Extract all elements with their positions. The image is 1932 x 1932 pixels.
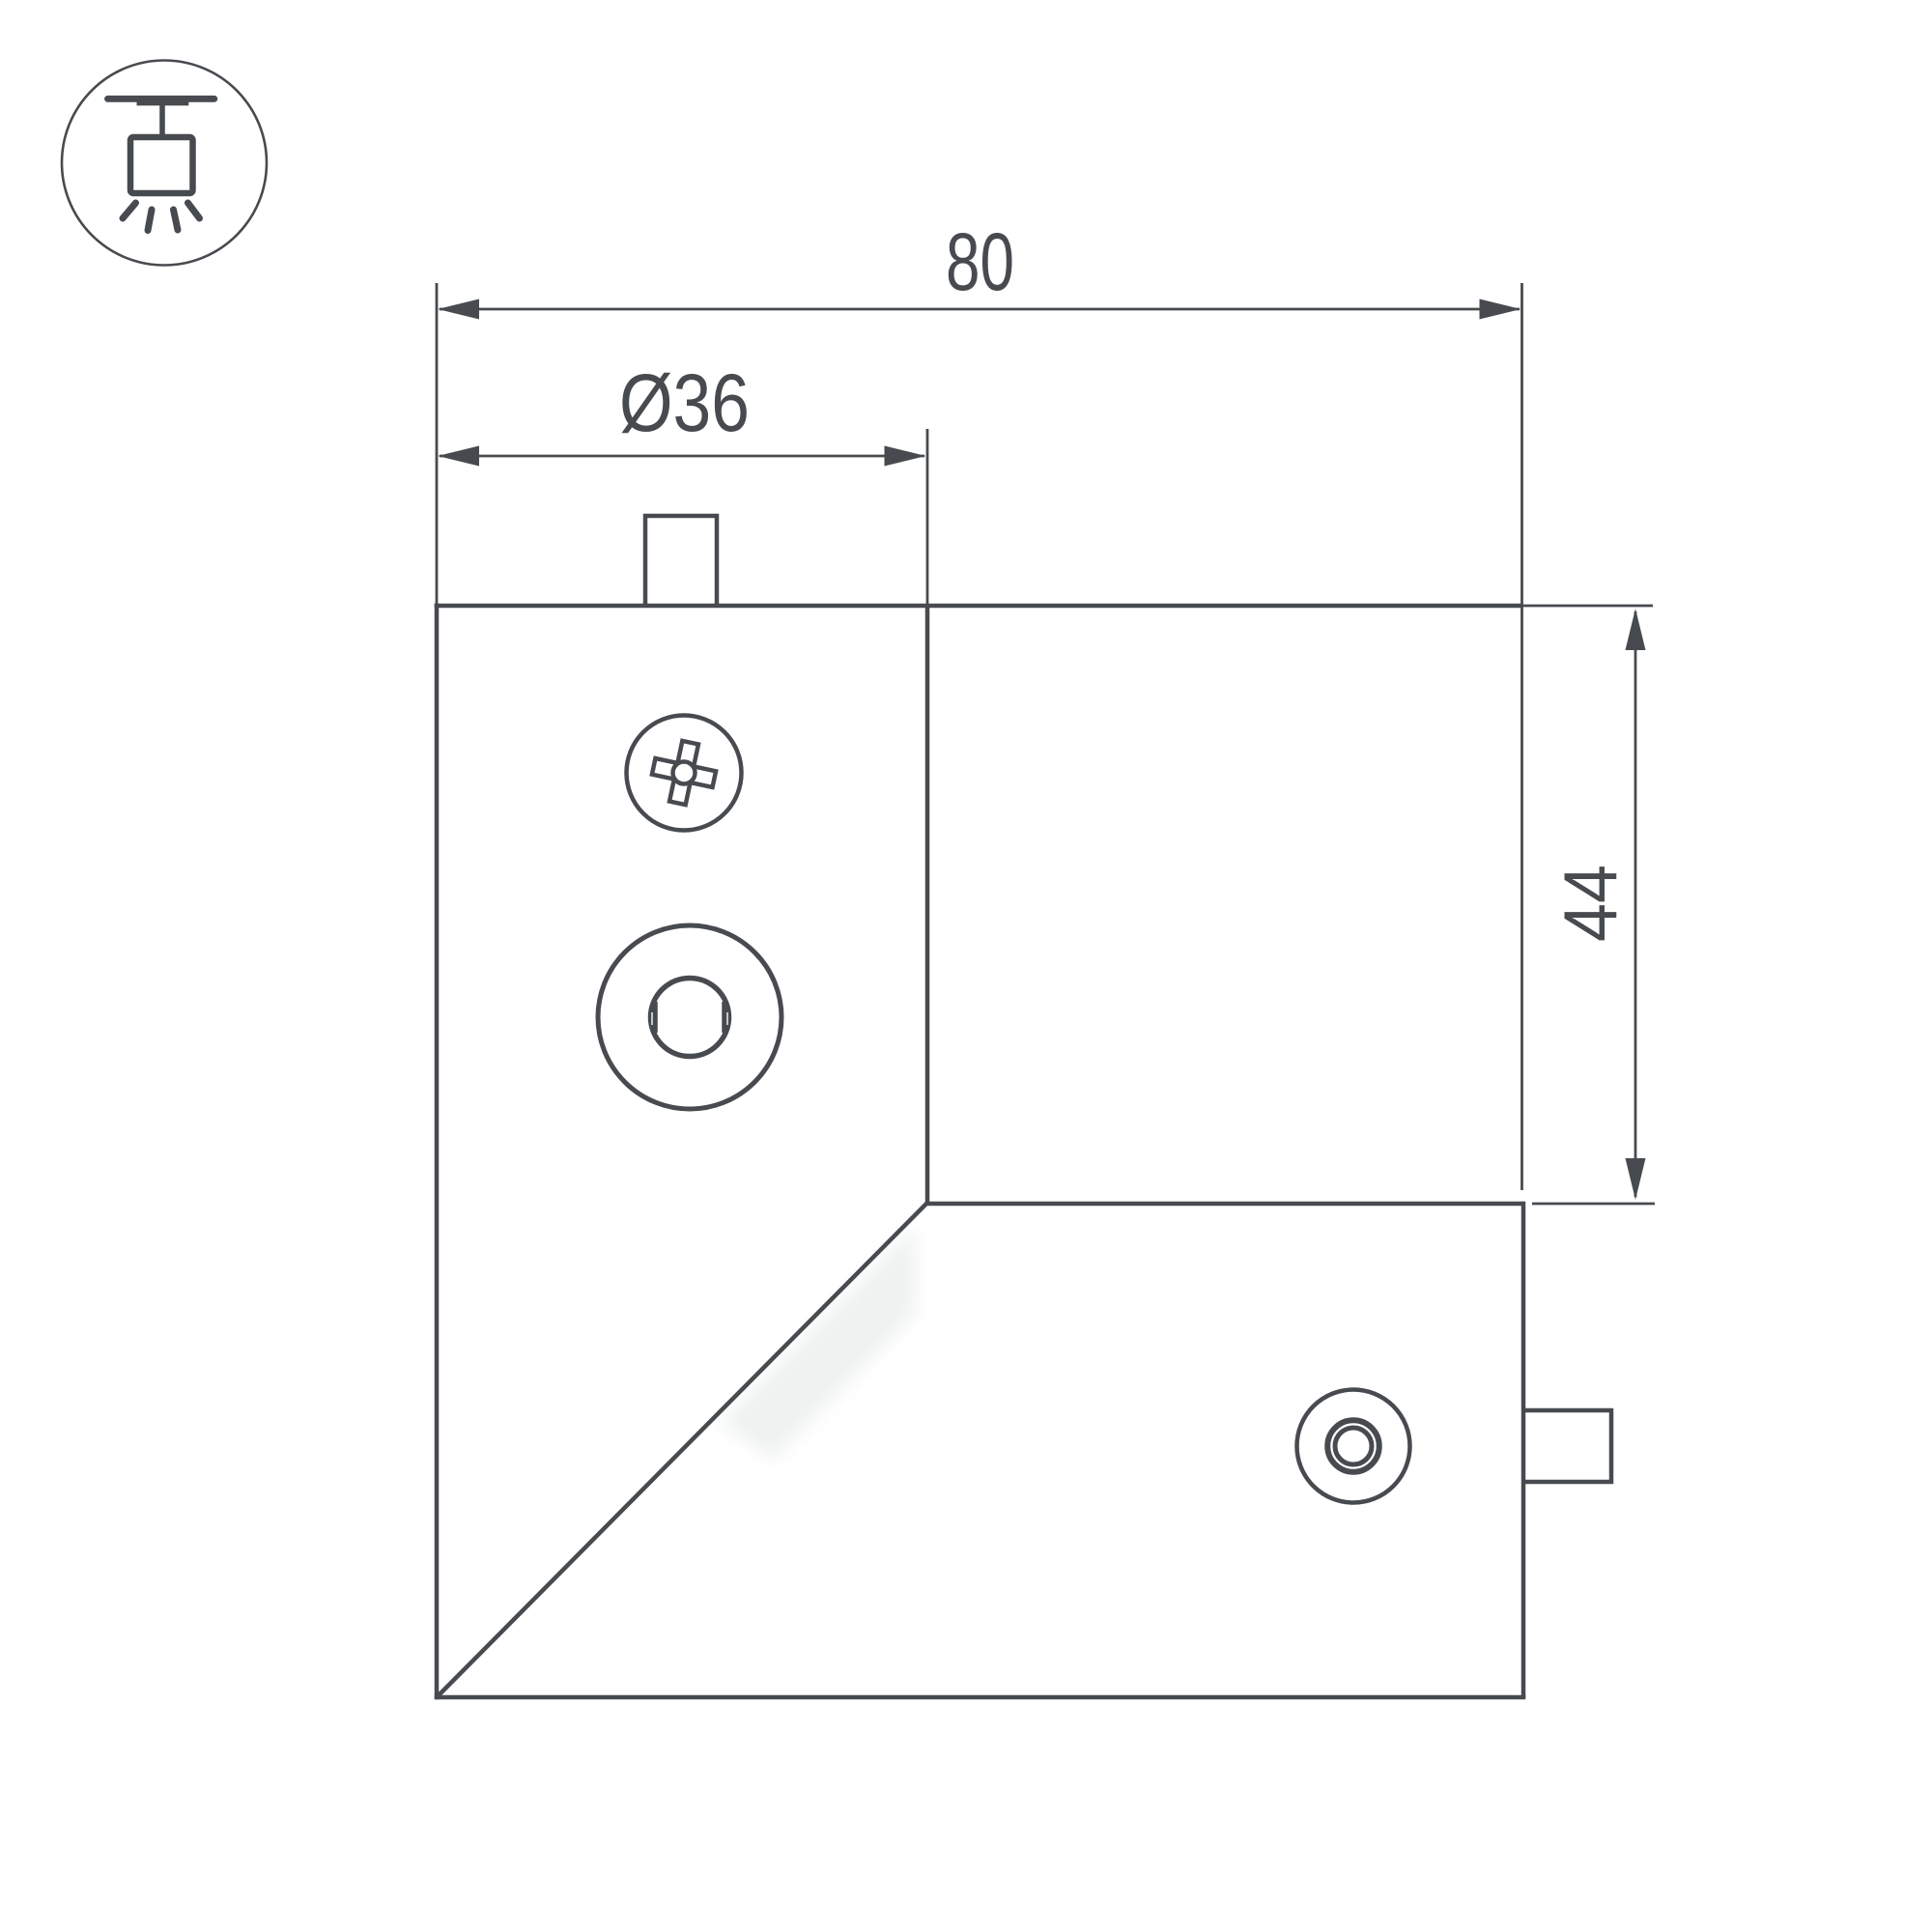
svg-text:44: 44 [1548,865,1633,942]
svg-text:80: 80 [946,216,1014,307]
svg-text:Ø36: Ø36 [619,357,750,448]
